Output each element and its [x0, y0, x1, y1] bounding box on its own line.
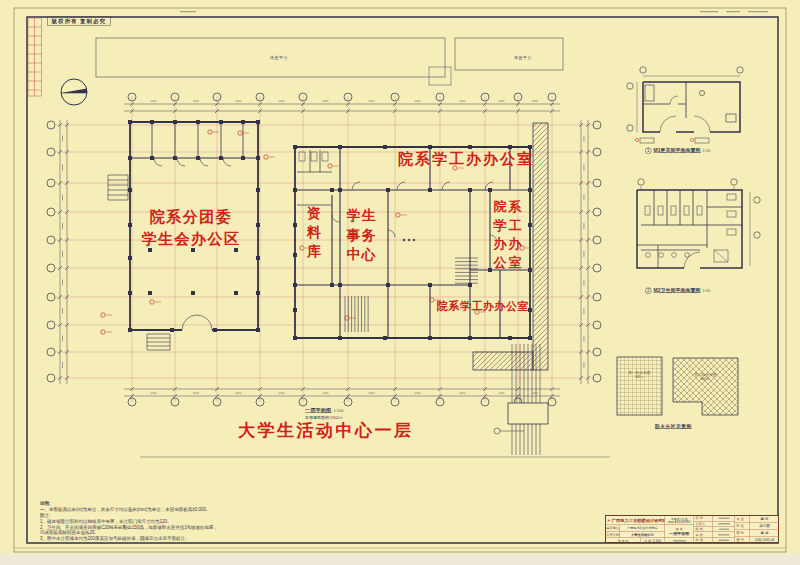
north-arrow-icon [61, 79, 87, 105]
dim-text-smudge [62, 195, 63, 201]
detail-2-caption: 2 M2卫生间平面布置图 1:50 [645, 287, 710, 294]
column-square [468, 336, 472, 340]
notes-block: 说明: 一、本图标高以米(m)为单位，其余尺寸均以毫米(mm)为单位；本层地面标… [40, 501, 340, 542]
scale-value: 1:100 [653, 539, 661, 543]
grid-bubble [593, 264, 601, 272]
column-square [293, 308, 297, 312]
dim-text-smudge [151, 393, 157, 394]
revision-strip [28, 18, 42, 96]
column-square [256, 223, 260, 227]
fire-zone-1-area: 901㎡ [617, 375, 662, 380]
column-square [508, 145, 512, 149]
company-logo-icon: ✳ [607, 518, 611, 523]
dim-text-smudge [323, 101, 329, 102]
column-square [170, 328, 174, 332]
column-square [528, 223, 532, 227]
detail-1-number: 1 [645, 147, 652, 154]
column-square [528, 268, 532, 272]
room-label-archive: 资料库 [306, 204, 322, 261]
title-block: ✳ 广西电力工业勘察设计研究院 建设单位 广西电力职业技术学院 工程名称 大学生… [605, 515, 779, 543]
column-square [196, 156, 200, 160]
column-square [468, 283, 472, 287]
dim-text-smudge [499, 393, 505, 394]
column-square [128, 328, 132, 332]
signature-smudge [719, 528, 729, 530]
column-square [256, 156, 260, 160]
canopy-outline [96, 38, 563, 85]
company-cell: ✳ 广西电力工业勘察设计研究院 [606, 516, 665, 525]
category-value: 建 施 [750, 530, 779, 537]
grid-bubble [47, 293, 55, 301]
grid-bubble [47, 321, 55, 329]
main-title: 大学生活动中心一层 [238, 419, 414, 442]
column-square [213, 328, 217, 332]
drawing-sheet: { "colors": { "paper":"#f5eeb9", "ink":"… [0, 0, 800, 565]
column-square [191, 291, 195, 295]
cert-line-2: 甲级 A145002980 [668, 520, 690, 524]
detail-2-scale: 1:50 [702, 288, 710, 293]
column-square [338, 336, 342, 340]
caption-title: 一层平面图 [305, 407, 331, 413]
dim-text-smudge [236, 101, 242, 102]
detail-1-title: M1更衣间平面布置图 [654, 147, 701, 154]
dim-text-smudge [62, 223, 63, 229]
dim-text-smudge [62, 336, 63, 342]
dim-text-smudge [584, 336, 585, 342]
sheet-edge-strip [0, 554, 800, 565]
stage-value: 施工图 [750, 523, 779, 530]
dim-text-smudge [62, 165, 63, 171]
dim-text-smudge [279, 101, 285, 102]
grid-bubble [47, 264, 55, 272]
grid-bubble [47, 208, 55, 216]
grid-bubble [593, 321, 601, 329]
index-tag-icon [238, 131, 242, 135]
plan-caption: 一层平面图 1:100 本层建筑面积:1902㎡ [305, 405, 343, 420]
column-square [128, 223, 132, 227]
dim-text-smudge [236, 393, 242, 394]
grid-bubble [47, 236, 55, 244]
dim-text-smudge [584, 362, 585, 368]
index-tag-icon [396, 213, 400, 217]
column-square [173, 120, 177, 124]
column-square [468, 188, 472, 192]
column-square [128, 256, 132, 260]
column-square [383, 145, 387, 149]
column-square [148, 291, 152, 295]
spec-value: 建 筑 [750, 516, 779, 523]
detail-1-plan [627, 67, 743, 143]
detail-2-number: 2 [645, 287, 652, 294]
league-line-1: 院系分团委 [138, 206, 244, 228]
note-line: 3、图中未注明墙体均为200厚蒸压加气砼砌块墙，隔墙定位详见平面标注。 [40, 536, 340, 542]
column-square [219, 120, 223, 124]
dim-text-smudge [62, 362, 63, 368]
dim-text-smudge [279, 393, 285, 394]
role-label: 批 准 [694, 538, 713, 543]
grid-bubble [593, 121, 601, 129]
index-tag-icon [328, 164, 332, 168]
copyright-stamp: 版权所有 复制必究 [47, 16, 111, 26]
date-cell: 年 月 日 [606, 538, 641, 543]
dim-text-smudge [415, 101, 421, 102]
column-square [386, 188, 390, 192]
column-square [219, 156, 223, 160]
grid-bubble [593, 348, 601, 356]
column-square [196, 120, 200, 124]
detail-2-title: M2卫生间平面布置图 [654, 287, 701, 294]
signature-smudge [718, 518, 729, 520]
column-square [528, 336, 532, 340]
fire-diagram-title: 防火分区示意图 [655, 423, 692, 430]
column-square [128, 156, 132, 160]
drawing-name-cell: 图 名 一层平面图 [665, 525, 694, 538]
index-tag-icon [101, 313, 105, 317]
column-square [338, 283, 342, 287]
index-tag-icon [300, 246, 304, 250]
caption-scale: 1:100 [333, 409, 343, 414]
room-label-bottom-office: 院系学工办办公室 [437, 299, 529, 314]
column-square [173, 156, 177, 160]
column-square [256, 256, 260, 260]
grid-bubble [47, 348, 55, 356]
grid-bubble [593, 236, 601, 244]
detail-1-scale: 1:50 [702, 148, 710, 153]
dim-text-smudge [62, 136, 63, 142]
column-square [528, 188, 532, 192]
cert-cell: 工程设计证书 甲级 A145002980 [665, 516, 694, 525]
column-square [128, 291, 132, 295]
dim-text-smudge [193, 393, 199, 394]
room-label-top-office: 院系学工办办公室 [398, 150, 534, 169]
grid-bubble [47, 148, 55, 156]
dim-text-smudge [323, 393, 329, 394]
dim-text-smudge [62, 308, 63, 314]
column-square [488, 188, 492, 192]
dim-text-smudge [415, 393, 421, 394]
copyright-text: 版权所有 复制必究 [47, 16, 111, 26]
signature-smudge [719, 540, 730, 542]
column-square [428, 283, 432, 287]
company-name: 广西电力工业勘察设计研究院 [612, 517, 665, 523]
column-square [128, 188, 132, 192]
index-tag-icon [150, 300, 154, 304]
column-square [293, 188, 297, 192]
dim-text-smudge [532, 393, 538, 394]
grid-bubble [593, 374, 601, 382]
column-square [386, 283, 390, 287]
sheet-no-value: 2(08)-204D-04 [750, 536, 779, 543]
detail-1-caption: 1 M1更衣间平面布置图 1:50 [645, 147, 710, 154]
dim-text-smudge [369, 101, 375, 102]
column-square [293, 283, 297, 287]
dim-text-smudge [584, 280, 585, 286]
dim-text-smudge [584, 136, 585, 142]
column-square [528, 145, 532, 149]
fire-zone-2-label: 第二防火分区 1002㎡ [683, 372, 728, 382]
column-square [293, 336, 297, 340]
grid-bubble [47, 121, 55, 129]
column-square [428, 145, 432, 149]
platform-label-left: 休息平台 [270, 55, 288, 61]
column-square [256, 328, 260, 332]
column-square [330, 188, 334, 192]
margin-marks [180, 11, 768, 12]
grid-bubble [593, 148, 601, 156]
spare-cell [665, 538, 694, 543]
column-square [256, 120, 260, 124]
dim-text-smudge [151, 101, 157, 102]
category-label: 图 别 [735, 530, 750, 537]
dim-text-smudge [584, 195, 585, 201]
room-label-right-office: 院系学工办办公室 [492, 198, 525, 272]
spec-label: 专 业 [735, 516, 750, 523]
drawing-name-value: 一层平面图 [669, 531, 689, 537]
column-square [428, 336, 432, 340]
room-label-league: 院系分团委 学生会办公区 [138, 206, 244, 250]
dim-text-smudge [532, 101, 538, 102]
dim-text-smudge [584, 308, 585, 314]
grid-bubble [47, 179, 55, 187]
column-square [428, 188, 432, 192]
dim-text-smudge [460, 101, 466, 102]
stairs [345, 258, 478, 332]
column-square [330, 283, 334, 287]
stage-label: 阶 段 [735, 523, 750, 530]
grid-bubble [593, 293, 601, 301]
column-square [256, 188, 260, 192]
dim-text-smudge [499, 101, 505, 102]
dim-text-smudge [584, 223, 585, 229]
detail-2-plan [637, 179, 760, 268]
column-square [338, 188, 342, 192]
grid-bubble [593, 179, 601, 187]
column-square [293, 223, 297, 227]
fire-zone-diagram [617, 357, 738, 415]
dim-text-smudge [62, 251, 63, 257]
fire-zone-1-label: 第一防火分区 901㎡ [617, 370, 662, 380]
league-line-2: 学生会办公区 [138, 228, 244, 250]
platform-label-right: 休息平台 [514, 55, 532, 61]
index-tag-icon [264, 155, 268, 159]
room-label-affairs: 学生事务中心 [346, 206, 377, 265]
scale-cell: 比 例 1:100 [641, 538, 665, 543]
column-square [468, 145, 472, 149]
column-square [234, 291, 238, 295]
illegible-text-smudge [673, 540, 686, 542]
column-square [338, 145, 342, 149]
column-square [383, 336, 387, 340]
floor-plan-linework [0, 0, 800, 565]
scale-label: 比 例 [645, 538, 652, 543]
dim-text-smudge [193, 101, 199, 102]
column-square [293, 253, 297, 257]
dim-text-smudge [460, 393, 466, 394]
dim-text-smudge [369, 393, 375, 394]
dim-text-smudge [584, 165, 585, 171]
role-signature [713, 538, 735, 543]
sheet-no-label: 图 号 [735, 536, 750, 543]
dim-text-smudge [62, 280, 63, 286]
column-square [150, 156, 154, 160]
column-square [293, 145, 297, 149]
column-square [256, 291, 260, 295]
column-square [128, 120, 132, 124]
column-square [241, 156, 245, 160]
index-tag-icon [101, 330, 105, 334]
grid-bubble [47, 374, 55, 382]
signature-smudge [718, 523, 730, 525]
signature-smudge [718, 534, 730, 536]
dim-text-smudge [584, 251, 585, 257]
fire-zone-2-area: 1002㎡ [683, 377, 728, 382]
index-tag-icon [208, 130, 212, 134]
column-square [150, 120, 154, 124]
grid-bubble [593, 208, 601, 216]
column-square [508, 336, 512, 340]
column-square [241, 120, 245, 124]
